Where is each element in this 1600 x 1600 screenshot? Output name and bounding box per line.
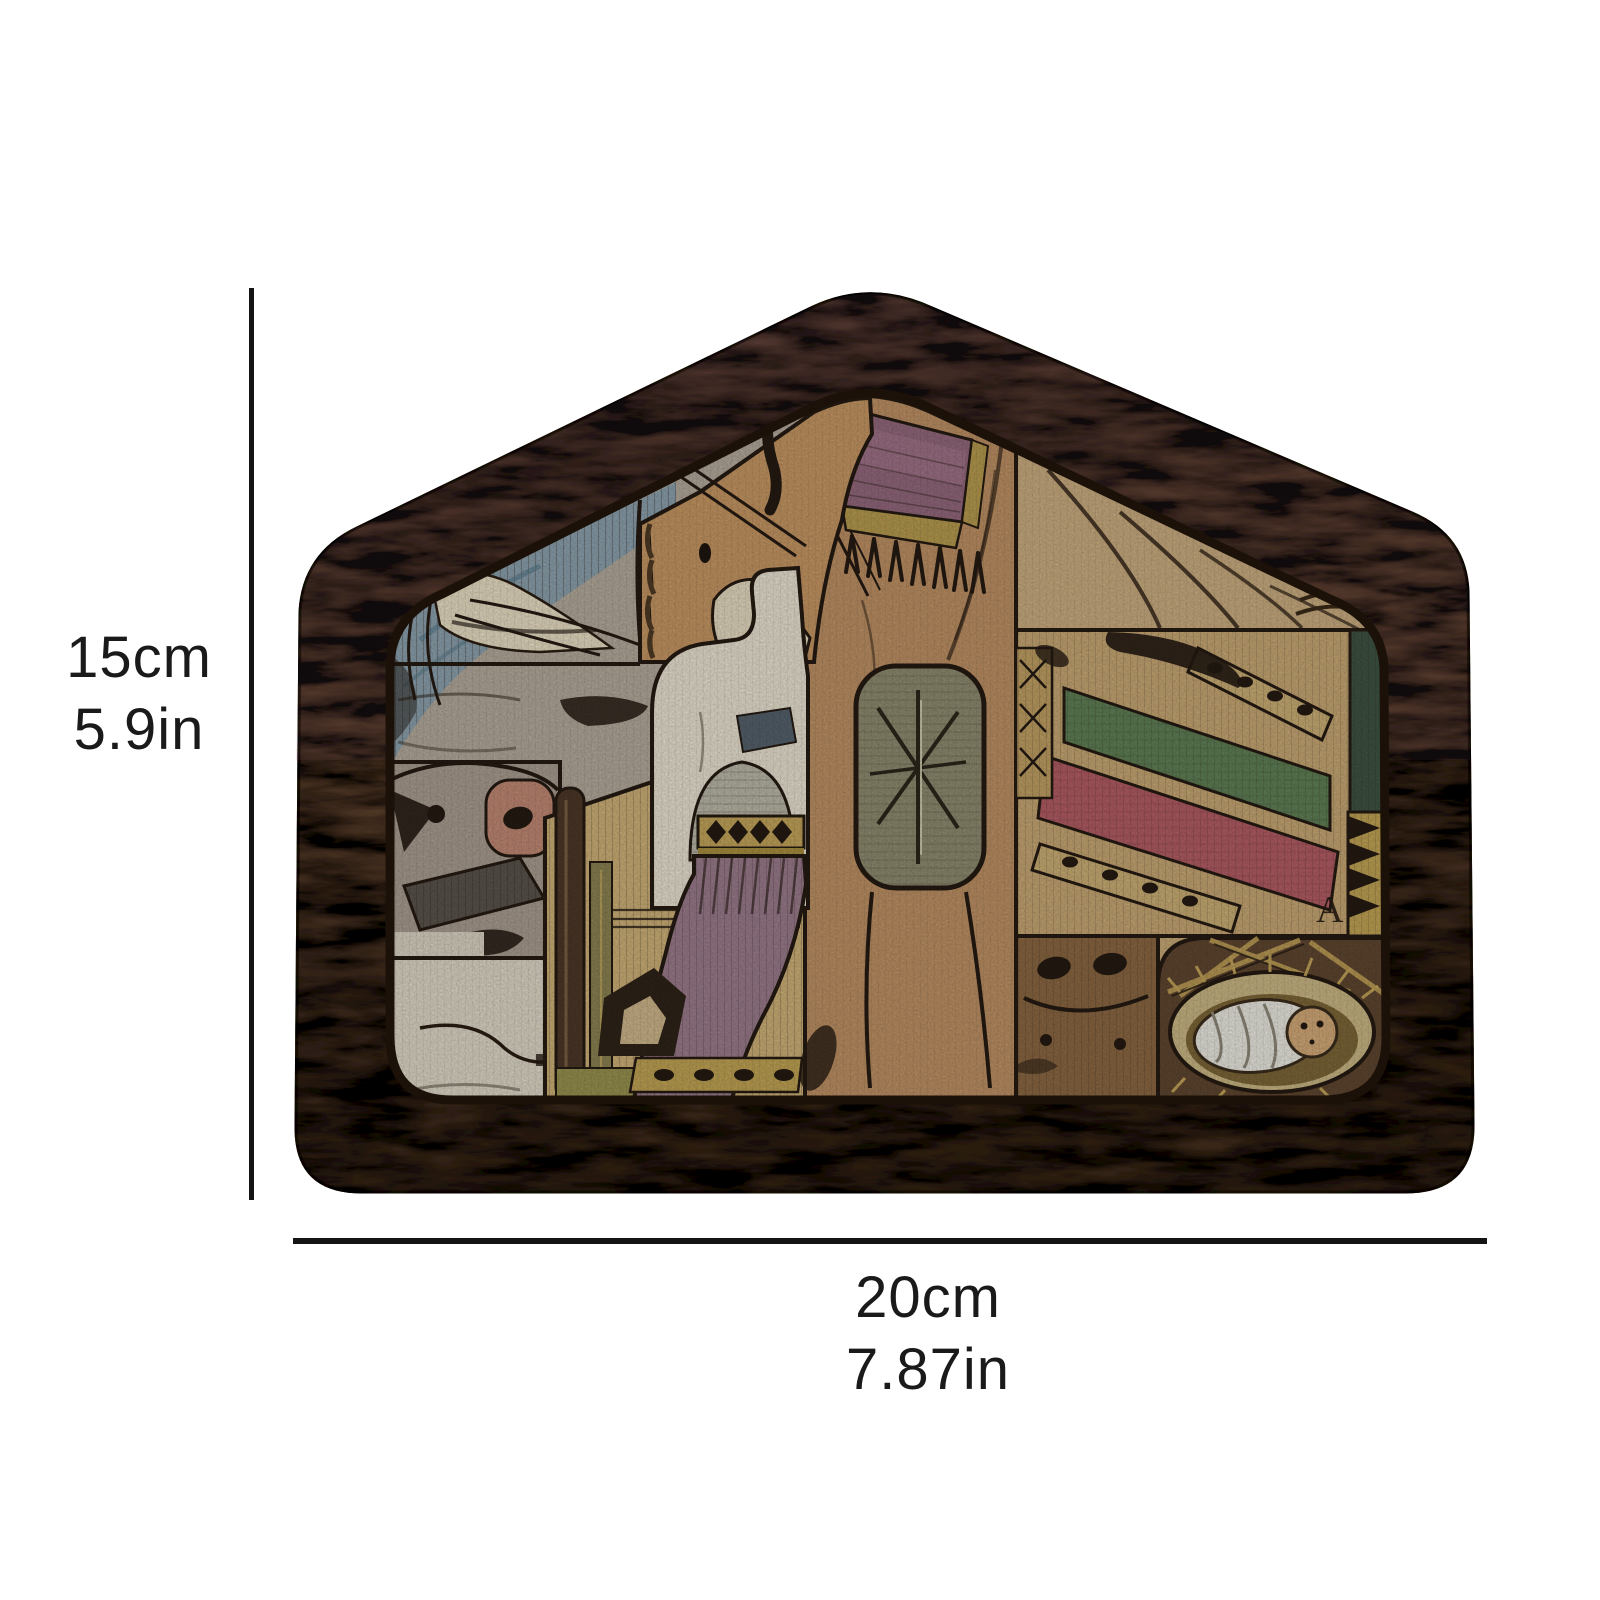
width-dimension-line — [293, 1238, 1487, 1244]
width-label-cm: 20cm — [758, 1262, 1098, 1334]
product-dimension-image: A — [0, 0, 1600, 1600]
width-dimension-label: 20cm 7.87in — [758, 1262, 1098, 1406]
height-label-in: 5.9in — [28, 694, 250, 766]
height-dimension-label: 15cm 5.9in — [28, 622, 250, 766]
height-label-cm: 15cm — [28, 622, 250, 694]
width-label-in: 7.87in — [758, 1334, 1098, 1406]
